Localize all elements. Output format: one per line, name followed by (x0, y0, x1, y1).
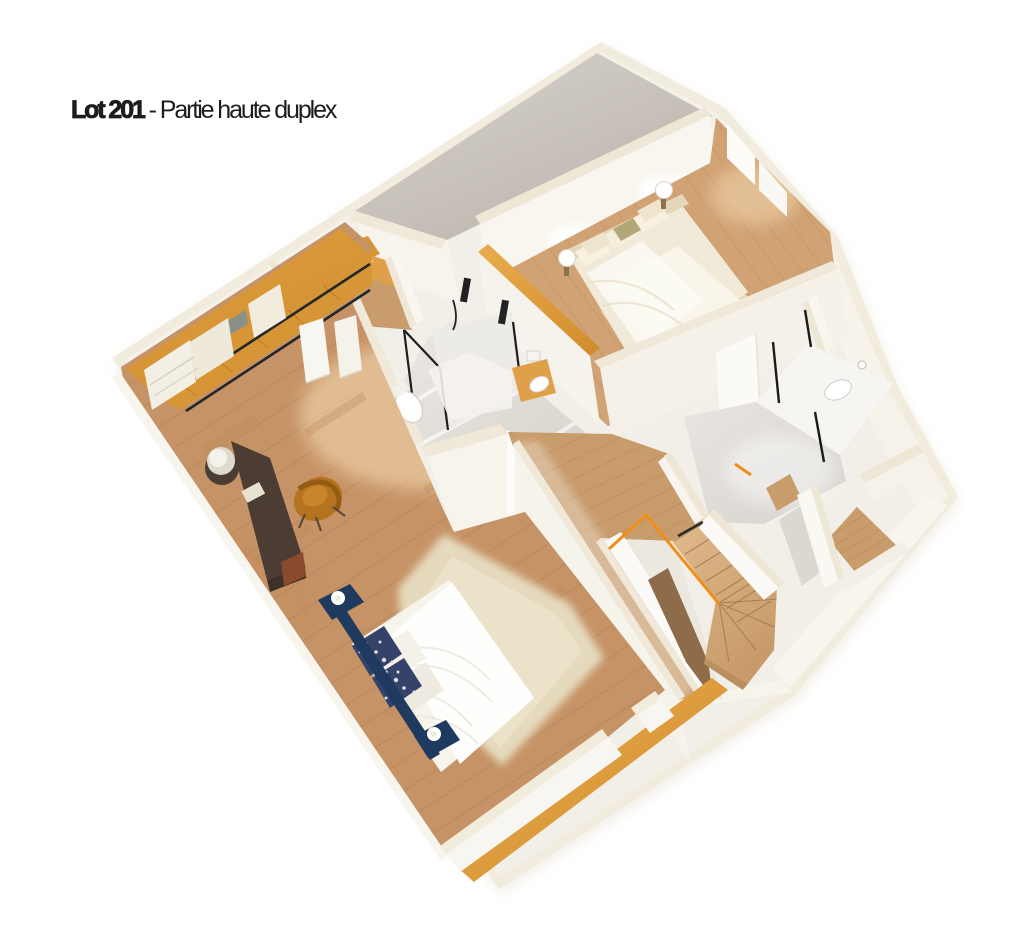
svg-text:Lot 201 - Partie haute duplex: Lot 201 - Partie haute duplex (71, 96, 338, 124)
